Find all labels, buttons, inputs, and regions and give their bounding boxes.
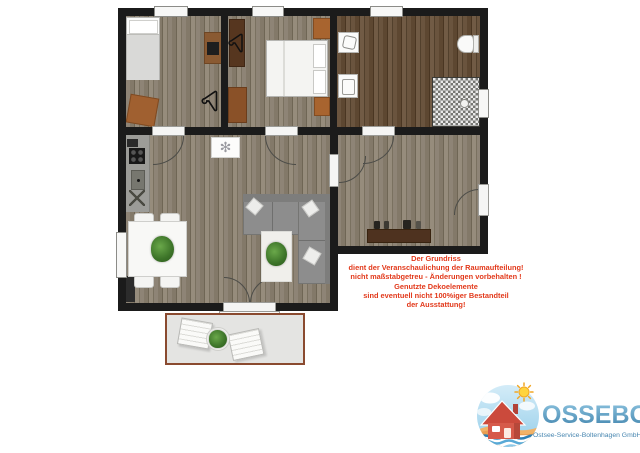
living-room-window	[116, 232, 127, 278]
house-window	[492, 426, 500, 432]
nightstand	[314, 97, 330, 116]
house-door	[504, 428, 511, 438]
toilet-tank	[473, 35, 479, 53]
lounge-chair	[228, 328, 265, 361]
bedroom1-window	[154, 6, 188, 17]
single-bed-pillow	[129, 20, 158, 34]
disclaimer-line: nicht maßstabgetreu - Änderungen vorbeha…	[340, 272, 532, 281]
terrace	[165, 313, 305, 365]
disclaimer-line: Genutzte Dekoelemente	[340, 282, 532, 291]
shower-area	[432, 77, 480, 127]
shoes	[374, 221, 380, 229]
faucet	[137, 179, 140, 182]
kitchen-sink	[131, 170, 145, 190]
disclaimer-line: der Ausstattung!	[340, 300, 532, 309]
bedroom2-door	[265, 126, 298, 136]
kitchen-appliance	[127, 139, 138, 147]
bathroom-sink	[338, 74, 358, 98]
bedroom1-door	[152, 126, 185, 136]
wall-bottom-hallway	[330, 246, 488, 254]
double-bed-fold	[283, 41, 285, 96]
hallway-door	[329, 154, 339, 187]
bathroom-window	[370, 6, 403, 17]
double-bed	[266, 40, 328, 97]
disclaimer-line: sind eventuell nicht 100%iger Bestandtei…	[340, 291, 532, 300]
sink-basin	[342, 79, 355, 95]
apartment-entry-door	[478, 184, 489, 216]
shower-head-icon	[460, 99, 469, 108]
shoe-bench	[367, 229, 431, 243]
disclaimer-line: dient der Veranschaulichung der Raumauft…	[340, 263, 532, 272]
cloud-icon	[519, 402, 535, 411]
toilet	[457, 35, 474, 53]
table-plant	[151, 236, 174, 262]
ornament-glyph: ✻	[220, 139, 232, 155]
bedroom2-window	[252, 6, 284, 17]
bedroom2-rug	[228, 87, 247, 123]
washer-drum-icon	[342, 35, 357, 50]
wall-right	[480, 8, 488, 254]
ceiling-ornament: ✻	[211, 137, 240, 158]
shoes	[384, 221, 389, 229]
double-bed-pillow	[313, 44, 326, 68]
disclaimer-text: Der Grundriss dient der Veranschaulichun…	[340, 254, 532, 309]
floor-plant	[266, 242, 287, 266]
sofa-seat-seam	[298, 240, 325, 241]
bedroom1-desk	[204, 32, 222, 64]
floorplan-page: ✻ Der Grundriss dient d	[0, 0, 640, 453]
nightstand	[313, 18, 331, 39]
terrace-plant	[209, 330, 227, 348]
cloud-icon	[477, 408, 491, 416]
laptop	[207, 42, 219, 55]
washing-machine	[338, 32, 359, 53]
wave-icon	[481, 446, 529, 449]
shoes	[416, 221, 421, 229]
disclaimer-line: Der Grundriss	[340, 254, 532, 263]
bar-stool	[129, 190, 145, 206]
wall-bedroom1-bedroom2	[221, 8, 228, 135]
wall-bedroom2-bathroom	[330, 8, 337, 135]
company-logo-icon	[477, 380, 543, 450]
company-name: OSSEBO	[542, 401, 640, 430]
shoes	[403, 220, 411, 229]
single-bed-blanket	[127, 34, 159, 80]
single-bed	[126, 17, 160, 80]
bedroom1-rug	[126, 94, 160, 128]
stove	[129, 148, 145, 164]
cloud-icon	[480, 393, 500, 404]
sun-icon	[515, 383, 533, 401]
bathroom-side-window	[478, 89, 489, 118]
bathroom-door	[362, 126, 395, 136]
company-subtitle: Ostsee-Service-Boltenhagen GmbH	[533, 432, 640, 439]
double-bed-pillow	[313, 70, 326, 94]
